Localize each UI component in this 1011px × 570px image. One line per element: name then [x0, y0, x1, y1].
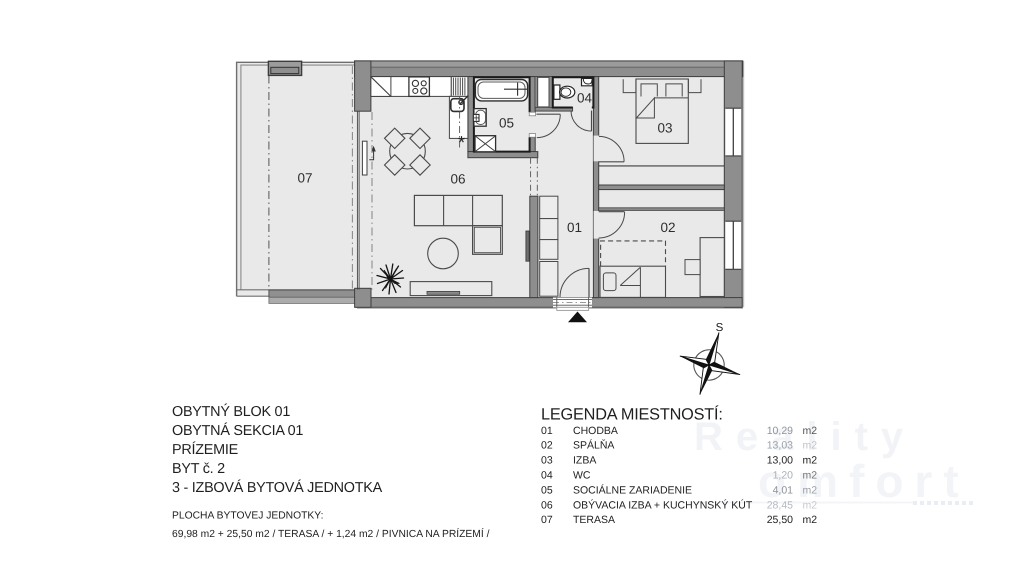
svg-text:25,50: 25,50 [767, 514, 793, 526]
svg-text:01: 01 [541, 425, 553, 437]
svg-text:03: 03 [657, 121, 672, 136]
svg-text:CHODBA: CHODBA [573, 425, 618, 437]
svg-text:03: 03 [541, 455, 553, 467]
svg-text:IZBA: IZBA [573, 455, 596, 467]
svg-text:WC: WC [573, 470, 591, 482]
svg-text:69,98 m2 + 25,50 m2 / TERASA /: 69,98 m2 + 25,50 m2 / TERASA / + 1,24 m2… [172, 528, 490, 540]
svg-text:OBYTNÝ BLOK 01: OBYTNÝ BLOK 01 [172, 403, 290, 420]
svg-text:28,45: 28,45 [767, 499, 793, 511]
svg-text:m2: m2 [803, 425, 818, 437]
svg-text:02: 02 [541, 440, 553, 452]
svg-text:LEGENDA MIESTNOSTÍ:: LEGENDA MIESTNOSTÍ: [541, 405, 723, 424]
svg-text:13,03: 13,03 [767, 440, 793, 452]
svg-text:1,20: 1,20 [773, 470, 794, 482]
svg-text:02: 02 [660, 220, 675, 235]
svg-text:*: * [458, 133, 465, 153]
svg-text:OBÝVACIA IZBA + KUCHYNSKÝ KÚT: OBÝVACIA IZBA + KUCHYNSKÝ KÚT [573, 498, 753, 511]
svg-text:PLOCHA BYTOVEJ JEDNOTKY:: PLOCHA BYTOVEJ JEDNOTKY: [172, 511, 323, 522]
svg-text:m2: m2 [803, 470, 818, 482]
svg-text:SOCIÁLNE ZARIADENIE: SOCIÁLNE ZARIADENIE [573, 483, 692, 496]
svg-text:07: 07 [297, 171, 312, 186]
svg-text:BYT č. 2: BYT č. 2 [172, 461, 225, 477]
svg-text:PRÍZEMIE: PRÍZEMIE [172, 441, 238, 458]
svg-text:04: 04 [541, 470, 553, 482]
svg-text:06: 06 [541, 499, 553, 511]
svg-text:OBYTNÁ SEKCIA 01: OBYTNÁ SEKCIA 01 [172, 422, 303, 439]
svg-text:TERASA: TERASA [573, 514, 615, 526]
svg-text:3 - IZBOVÁ BYTOVÁ JEDNOTKA: 3 - IZBOVÁ BYTOVÁ JEDNOTKA [172, 479, 383, 496]
svg-text:S: S [716, 322, 724, 334]
svg-text:05: 05 [541, 484, 553, 496]
svg-text:07: 07 [541, 514, 553, 526]
svg-text:Reality: Reality [694, 415, 916, 459]
svg-text:4,01: 4,01 [773, 484, 794, 496]
svg-text:m2: m2 [803, 484, 818, 496]
svg-text:01: 01 [567, 220, 582, 235]
svg-text:m2: m2 [803, 499, 818, 511]
svg-text:m2: m2 [803, 440, 818, 452]
svg-text:SPÁLŇA: SPÁLŇA [573, 439, 614, 452]
svg-text:10,29: 10,29 [767, 425, 793, 437]
svg-text:04: 04 [577, 91, 593, 106]
svg-text:m2: m2 [803, 455, 818, 467]
svg-text:06: 06 [450, 172, 465, 187]
svg-text:05: 05 [499, 116, 514, 131]
svg-text:m2: m2 [803, 514, 818, 526]
svg-text:13,00: 13,00 [767, 455, 793, 467]
